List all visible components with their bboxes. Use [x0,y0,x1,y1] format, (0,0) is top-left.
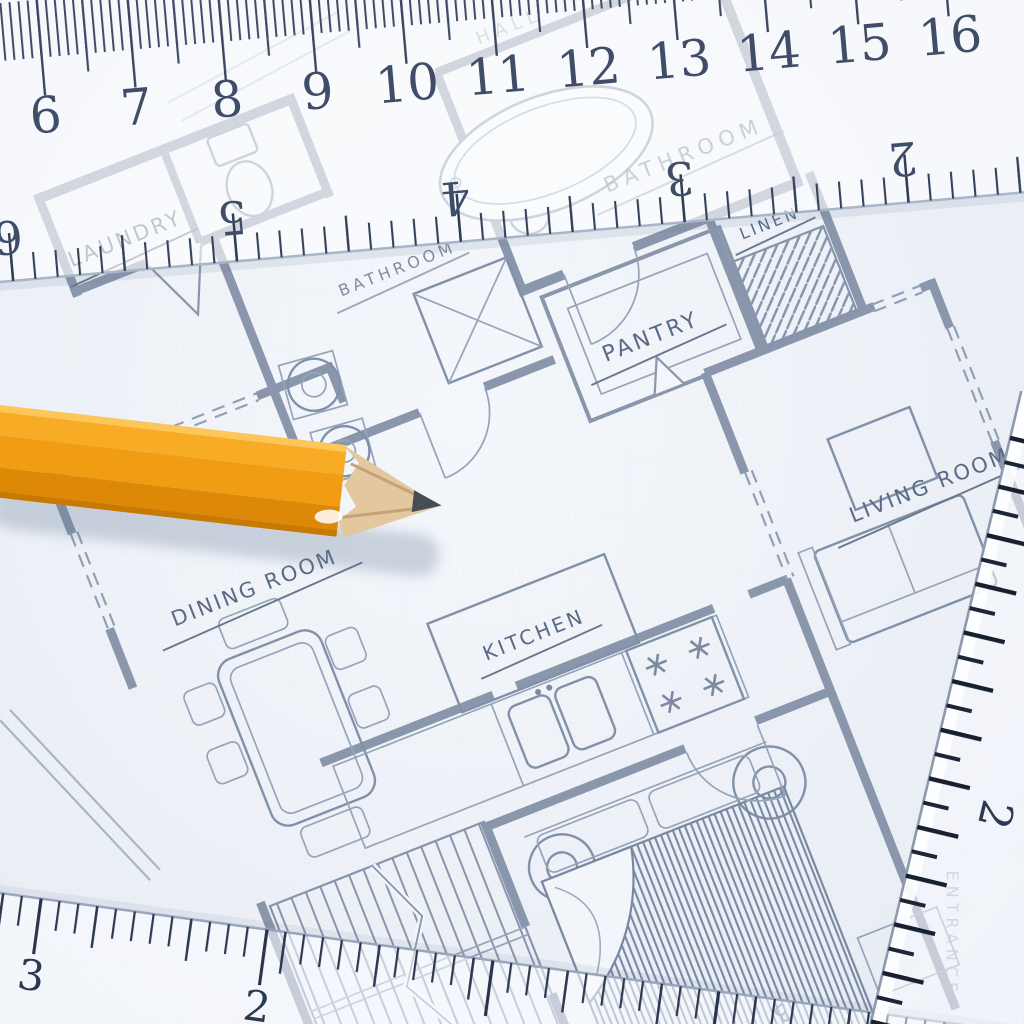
blueprint-photo: HALL [0,0,1024,1024]
ruler-number: 8 [209,69,246,130]
ruler-number: 4 [438,170,472,226]
ruler-number: 9 [299,61,336,122]
ruler-number: 16 [916,5,984,68]
ruler-number: 5 [215,189,249,245]
ruler-number: 2 [240,980,273,1024]
ruler-number: 11 [464,44,532,107]
ruler-number: 10 [373,52,441,115]
ruler-number: 2 [886,131,920,187]
ruler-number: 15 [825,13,893,76]
scene: HALL [0,0,1024,1024]
ruler-number: 13 [645,28,713,91]
ruler-number: 7 [118,77,155,138]
ruler-number: 14 [735,20,803,83]
ruler-number: 3 [663,150,697,206]
ruler-number: 6 [27,85,64,146]
ruler-number: 12 [554,36,622,99]
ruler-number: 6 [0,209,25,265]
